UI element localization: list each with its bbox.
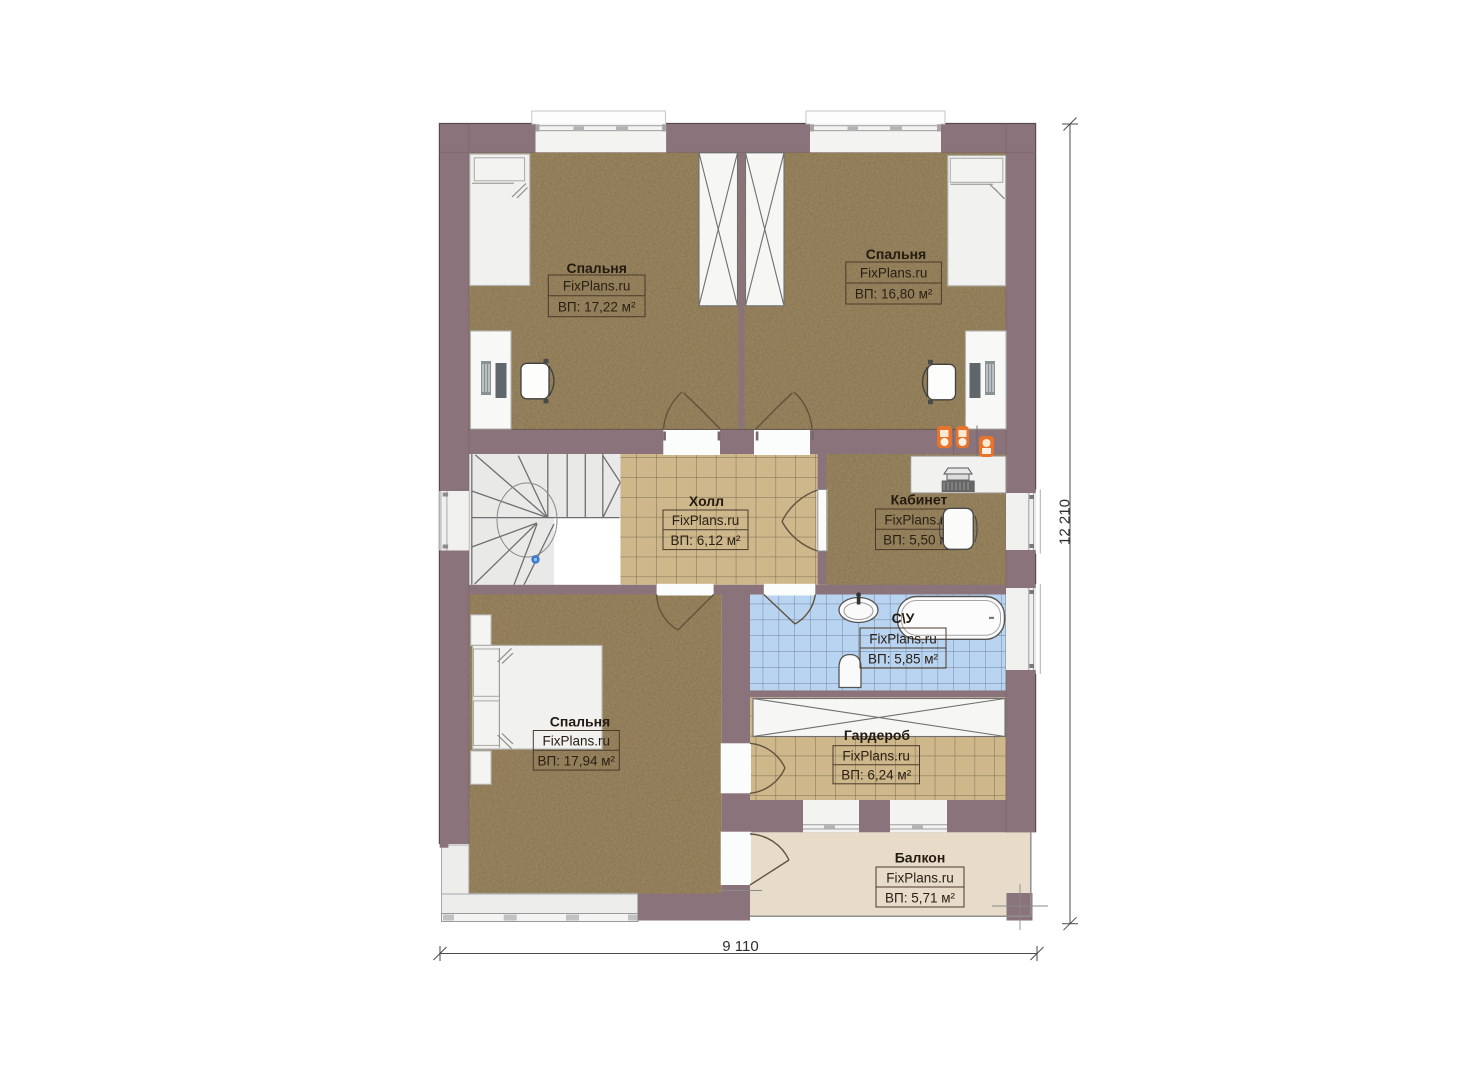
svg-text:FixPlans.ru: FixPlans.ru — [672, 513, 740, 528]
svg-text:Спальня: Спальня — [550, 714, 610, 730]
svg-text:ВП: 6,12 м²: ВП: 6,12 м² — [670, 533, 741, 548]
svg-text:Гардероб: Гардероб — [844, 727, 911, 743]
svg-text:С\У: С\У — [892, 610, 915, 626]
svg-text:Балкон: Балкон — [895, 850, 946, 866]
svg-text:ВП: 5,71 м²: ВП: 5,71 м² — [885, 891, 956, 906]
svg-text:FixPlans.ru: FixPlans.ru — [543, 734, 611, 749]
svg-text:FixPlans.ru: FixPlans.ru — [860, 266, 928, 281]
svg-text:FixPlans.ru: FixPlans.ru — [563, 279, 631, 294]
svg-text:FixPlans.ru: FixPlans.ru — [842, 749, 910, 764]
svg-text:Спальня: Спальня — [566, 260, 626, 276]
svg-text:Спальня: Спальня — [866, 246, 926, 262]
svg-text:FixPlans.ru: FixPlans.ru — [869, 632, 937, 647]
svg-text:9 110: 9 110 — [722, 938, 758, 955]
svg-text:FixPlans.ru: FixPlans.ru — [886, 871, 954, 886]
svg-text:Кабинет: Кабинет — [891, 492, 948, 508]
svg-text:12 210: 12 210 — [1057, 499, 1074, 545]
svg-text:Холл: Холл — [689, 493, 724, 509]
svg-text:ВП: 16,80 м²: ВП: 16,80 м² — [855, 287, 933, 302]
svg-text:ВП: 17,22 м²: ВП: 17,22 м² — [558, 300, 636, 315]
svg-text:ВП: 6,24 м²: ВП: 6,24 м² — [841, 768, 912, 783]
svg-text:ВП: 5,85 м²: ВП: 5,85 м² — [868, 652, 939, 667]
svg-text:FixPlans.ru: FixPlans.ru — [884, 513, 952, 528]
svg-text:ВП: 17,94 м²: ВП: 17,94 м² — [538, 754, 616, 769]
